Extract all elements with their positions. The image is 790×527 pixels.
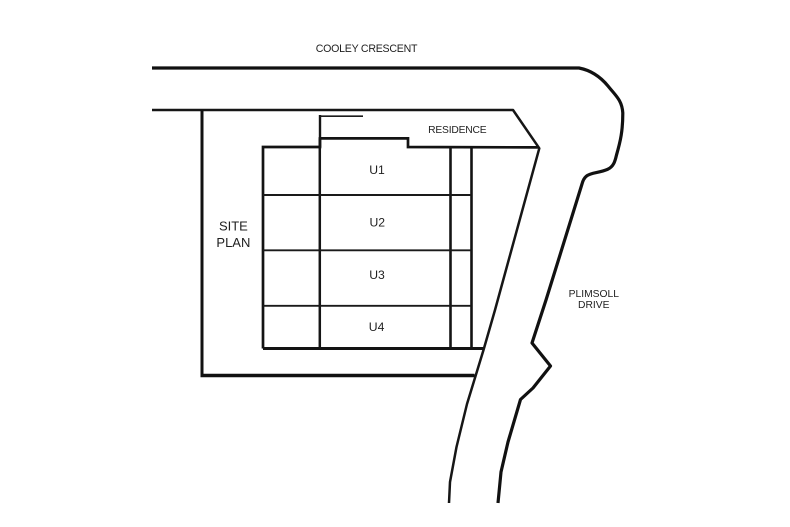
svg-text:PLIMSOLL: PLIMSOLL: [569, 289, 620, 300]
svg-text:U3: U3: [369, 268, 385, 282]
svg-text:RESIDENCE: RESIDENCE: [428, 125, 487, 136]
svg-text:DRIVE: DRIVE: [578, 300, 610, 311]
svg-text:U1: U1: [369, 163, 385, 177]
svg-text:U2: U2: [370, 215, 386, 229]
svg-text:PLAN: PLAN: [216, 235, 250, 250]
svg-text:SITE: SITE: [219, 218, 248, 233]
svg-text:U4: U4: [369, 320, 385, 334]
svg-text:COOLEY CRESCENT: COOLEY CRESCENT: [316, 43, 418, 55]
